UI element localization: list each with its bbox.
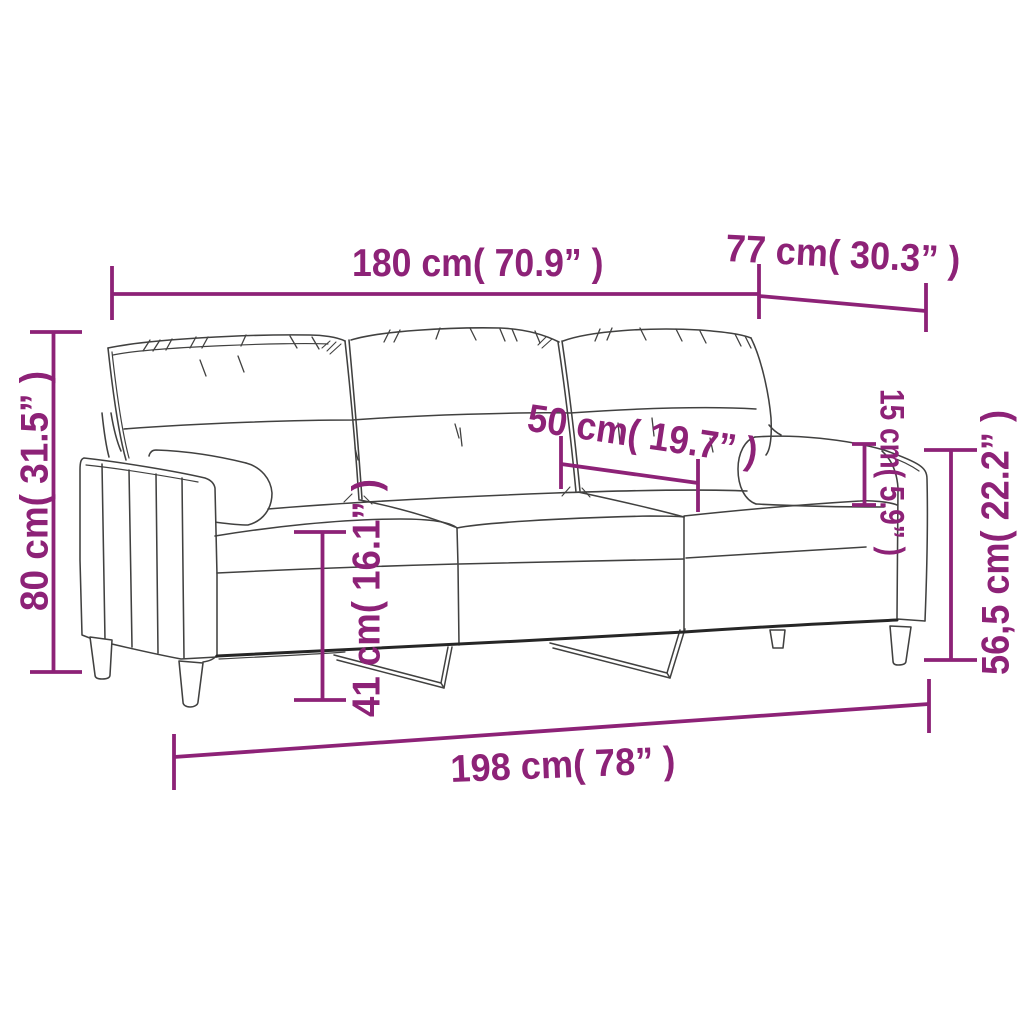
svg-text:80 cm( 31.5” ): 80 cm( 31.5” ) [14, 371, 57, 611]
svg-text:198 cm( 78” ): 198 cm( 78” ) [450, 739, 677, 791]
svg-text:15 cm( 5.9” ): 15 cm( 5.9” ) [873, 389, 911, 556]
svg-text:56,5 cm( 22.2” ): 56,5 cm( 22.2” ) [975, 410, 1018, 675]
svg-text:180 cm( 70.9” ): 180 cm( 70.9” ) [352, 242, 604, 285]
svg-text:41 cm( 16.1” ): 41 cm( 16.1” ) [346, 479, 389, 717]
